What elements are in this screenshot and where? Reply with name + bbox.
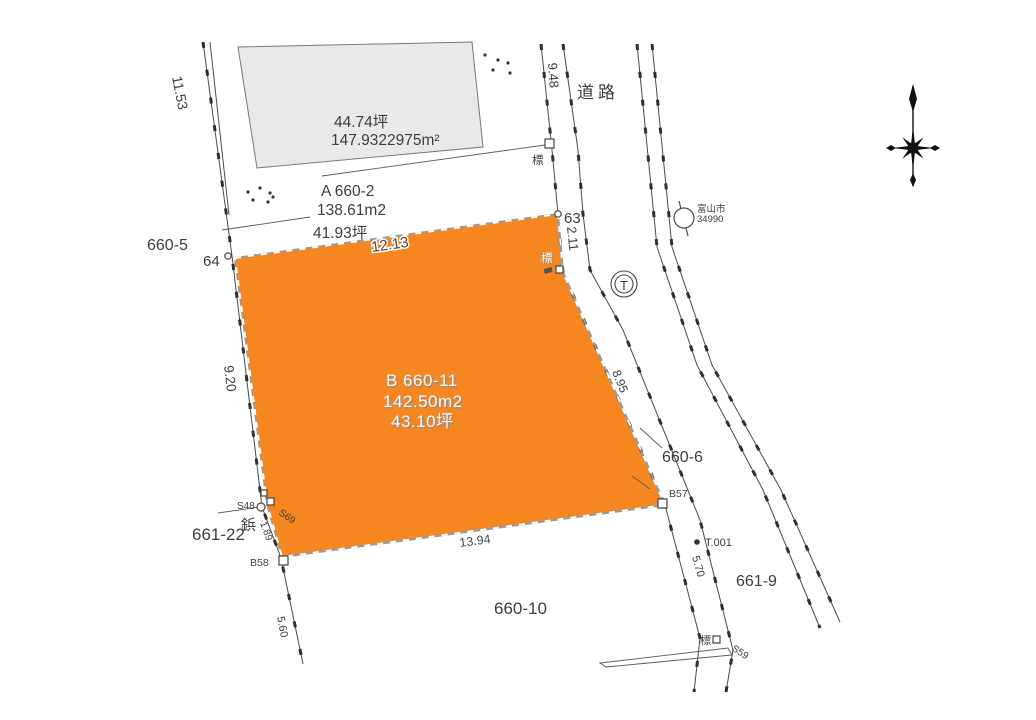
building-group: 44.74坪 147.9322975m² — [238, 42, 483, 168]
parcel-a-id: A 660-2 — [321, 183, 374, 200]
dim-5-70: 5.70 — [689, 555, 706, 579]
dot — [266, 200, 269, 203]
manhole-circle — [674, 208, 694, 228]
dot — [258, 186, 261, 189]
dim-9-20: 9.20 — [221, 365, 239, 393]
far-road-east-line — [652, 44, 840, 622]
building-footprint — [238, 42, 483, 168]
survey-marker-road-label: 標 — [532, 153, 544, 167]
point-b57-marker — [658, 499, 667, 508]
parcel-660-6-leader — [640, 428, 662, 448]
compass-rose-icon — [886, 84, 940, 187]
survey-marker-bottom-label: 標 — [700, 633, 711, 647]
point-s48-marker — [257, 503, 265, 511]
point-63-marker — [555, 211, 561, 217]
parcel-b-id: B 660-11 — [386, 371, 458, 390]
point-b57-label: B57 — [669, 488, 688, 500]
ditch-sliver — [600, 648, 732, 667]
dot — [268, 191, 271, 194]
dot — [271, 195, 274, 198]
dot — [246, 190, 249, 193]
manhole-tick-bottom — [686, 228, 688, 236]
compass-north-spear — [909, 84, 917, 112]
survey-marker-road-box — [545, 139, 554, 148]
s48-aux-marker — [261, 490, 267, 496]
parcel-b-area-tsubo: 43.10坪 — [391, 412, 454, 431]
dot — [506, 61, 509, 64]
manhole-tick-top — [679, 201, 681, 209]
pole-letter: T — [620, 278, 628, 293]
parcel-a-area-tsubo: 41.93坪 — [313, 224, 367, 242]
utility-pole-symbol: T — [611, 271, 637, 297]
point-b58-label: B58 — [250, 557, 269, 569]
dot — [508, 71, 511, 74]
dim-2-11: 2.11 — [564, 226, 581, 252]
point-64-label: 64 — [203, 253, 220, 270]
dim-9-48: 9.48 — [545, 62, 562, 88]
point-s48-label: S48 — [237, 501, 255, 512]
dim-11-53: 11.53 — [169, 75, 191, 112]
point-63-label: 63 — [564, 210, 581, 227]
dot — [496, 58, 499, 61]
cadastral-map: 44.74坪 147.9322975m² A 660-2 138.61m2 41… — [0, 0, 1036, 720]
dim-5-60: 5.60 — [274, 615, 290, 638]
map-canvas: 44.74坪 147.9322975m² A 660-2 138.61m2 41… — [0, 0, 1036, 720]
dot — [491, 68, 494, 71]
parcel-660-6-label: 660-6 — [662, 449, 703, 466]
nail-label: 鋲 — [241, 517, 256, 534]
parcel-661-22-label: 661-22 — [192, 525, 245, 544]
city-manhole: 富山市 34990 — [674, 201, 726, 236]
survey-marker-corner-label: 標 — [541, 251, 553, 265]
city-number-label: 34990 — [697, 214, 723, 225]
building-area-tsubo: 44.74坪 — [334, 113, 388, 131]
left-boundary-inner-line — [210, 42, 229, 215]
point-t001-marker — [694, 539, 700, 545]
parcel-a-west-line — [222, 217, 310, 230]
corner-aux-box — [556, 266, 563, 273]
parcel-b-area-m2: 142.50m2 — [383, 392, 463, 411]
compass-south-diamond — [910, 173, 916, 187]
parcel-661-9-label: 661-9 — [736, 573, 777, 590]
point-t001-label: T.001 — [705, 537, 732, 549]
parcel-b-labels: B 660-11 B 660-11 142.50m2 142.50m2 43.1… — [383, 371, 464, 433]
building-area-m2: 147.9322975m² — [331, 132, 440, 149]
dim-13-94: 13.94 — [459, 532, 492, 550]
point-b58-marker — [279, 556, 288, 565]
parcel-a-group: A 660-2 138.61m2 41.93坪 — [313, 183, 386, 242]
point-64-marker — [225, 253, 231, 259]
dot — [483, 53, 486, 56]
far-road-east-ticks — [652, 44, 840, 622]
parcel-660-10-label: 660-10 — [494, 599, 547, 618]
parcel-a-area-m2: 138.61m2 — [317, 202, 386, 219]
parcel-660-5-label: 660-5 — [147, 237, 188, 254]
s48-edge-marker — [267, 498, 274, 505]
road-label: 道路 — [577, 83, 619, 102]
dot — [251, 198, 254, 201]
compass-center — [908, 143, 919, 154]
survey-marker-bottom-box — [713, 636, 720, 643]
